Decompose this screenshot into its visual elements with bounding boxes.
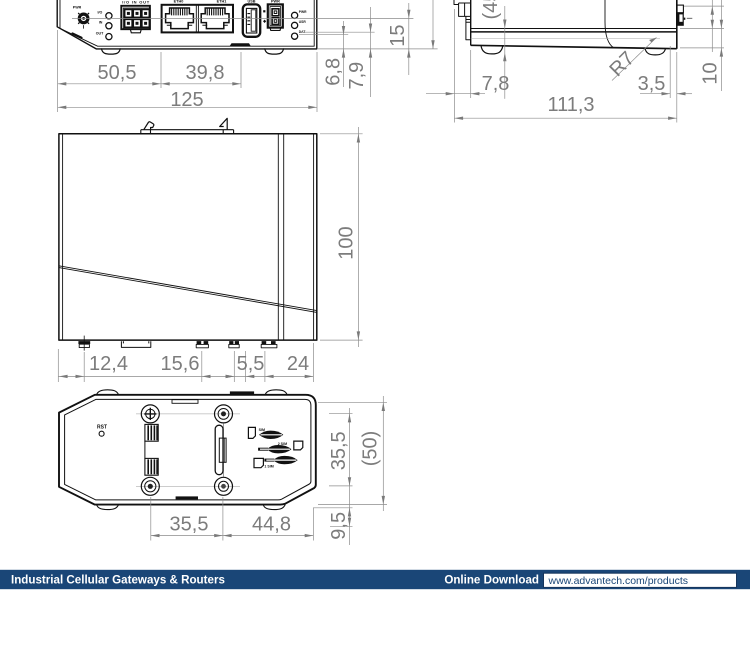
svg-text:ETH1: ETH1 [217, 0, 227, 4]
svg-text:9,5: 9,5 [328, 512, 350, 540]
svg-text:100: 100 [336, 226, 358, 259]
svg-text:I/O IN OUT: I/O IN OUT [122, 0, 150, 4]
svg-text:USB: USB [247, 0, 255, 4]
svg-text:125: 125 [170, 89, 203, 111]
svg-text:PWR: PWR [271, 0, 280, 4]
svg-text:6,8: 6,8 [323, 58, 345, 86]
svg-text:Online Download: Online Download [444, 574, 539, 587]
svg-text:7,8: 7,8 [482, 73, 510, 95]
svg-text:IN: IN [99, 21, 103, 25]
svg-text:44,8: 44,8 [252, 514, 291, 536]
svg-text:50,5: 50,5 [98, 62, 137, 84]
svg-text:ETH0: ETH0 [174, 0, 184, 4]
svg-text:RST: RST [97, 425, 107, 431]
svg-text:39,8: 39,8 [186, 62, 225, 84]
svg-text:3,5: 3,5 [638, 73, 666, 95]
svg-text:12,4: 12,4 [89, 353, 128, 375]
svg-text:24: 24 [287, 353, 309, 375]
svg-text:5,5: 5,5 [237, 353, 265, 375]
svg-text:Industrial Cellular Gateways &: Industrial Cellular Gateways & Routers [11, 574, 225, 587]
svg-text:SIM: SIM [259, 428, 265, 432]
svg-text:1 SIM: 1 SIM [264, 465, 273, 469]
svg-text:USR: USR [299, 20, 307, 24]
svg-text:(45): (45) [480, 0, 502, 20]
svg-text:111,3: 111,3 [547, 94, 594, 116]
svg-text:PWR: PWR [299, 10, 307, 14]
svg-text:(50): (50) [360, 431, 382, 467]
svg-text:I/O: I/O [98, 10, 103, 14]
svg-text:7,9: 7,9 [346, 62, 368, 90]
svg-text:15: 15 [387, 24, 409, 46]
svg-text:www.advantech.com/products: www.advantech.com/products [548, 575, 688, 587]
svg-text:15,6: 15,6 [161, 353, 200, 375]
svg-text:OUT: OUT [96, 31, 104, 35]
svg-text:PWR: PWR [73, 6, 82, 10]
svg-text:35,5: 35,5 [170, 514, 209, 536]
svg-text:35,5: 35,5 [328, 431, 350, 470]
svg-text:10: 10 [700, 62, 722, 84]
